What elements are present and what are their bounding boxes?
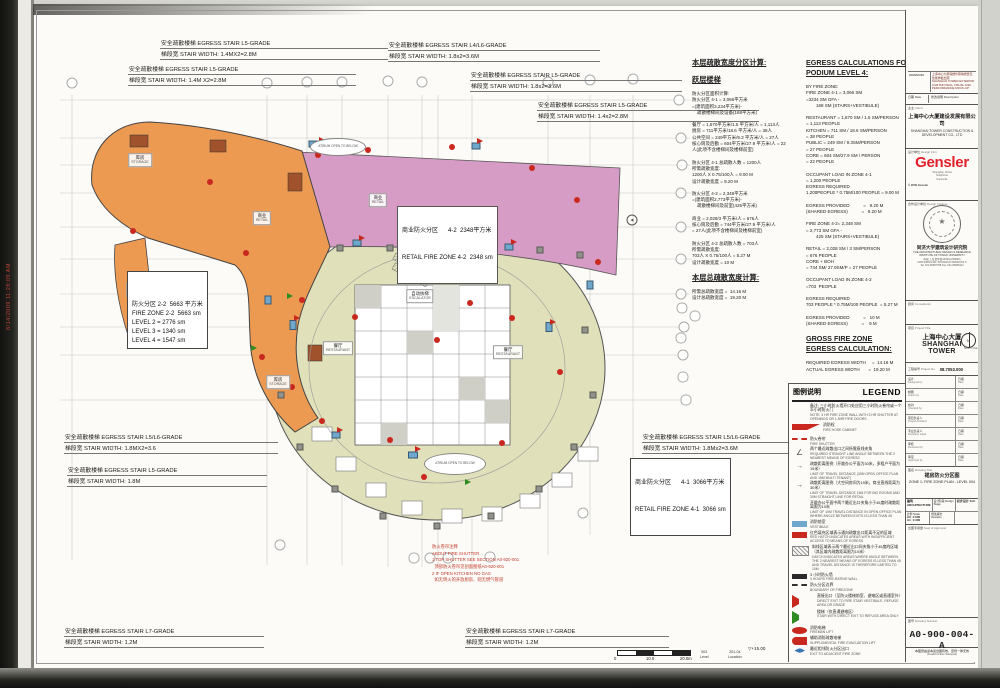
architect-label: 设计单位 Design Firm: [908, 150, 937, 154]
grid-bubble: [676, 222, 687, 233]
legend-item-text: 两个最近疏散出口之间所需直线夹角 REQUIRED STRAIGHT LINE …: [810, 447, 902, 460]
fire-hose-cabinet-icon: [352, 314, 358, 320]
fire-hose-cabinet-icon: [434, 337, 440, 343]
stair-annotation-line2: 梯段宽 STAIR WIDTH: 1.8MX2=3.6: [64, 443, 278, 454]
grid-bubble: [417, 77, 428, 88]
legend-symbol-icon: [792, 502, 807, 507]
revision-section: 2009/06/30 上海中心大厦塔楼外幕墙视觉及性能样板出图 SHANGHAI…: [906, 10, 978, 94]
room-label: 餐厅RESTAURANT: [323, 341, 353, 355]
consultants-section: 顾问 Consultants: [906, 301, 978, 325]
legend-item-cn: 疏散距离图例（大空间房间为15米，商业直线距离为30米）: [810, 481, 902, 490]
scan-binding-edge: [0, 0, 18, 688]
copyright-line: © 2009 Gensler: [908, 183, 976, 187]
page-right-edge-line: [981, 0, 982, 688]
legend-symbol-icon: [792, 482, 807, 489]
fire-zone-2-2-line: 防火分区 2-2 5663 平方米: [132, 301, 203, 310]
grid-bubble: [677, 160, 688, 171]
legend-item-text: 楼梯（仅直通避难区） STAIR WITH DIRECT EXIT TO REF…: [817, 610, 902, 619]
grid-bubble: [676, 133, 687, 144]
vestibule-marker: [265, 296, 272, 305]
legend-items: 备注: 三小时防火墙开口处应用三小时防火卷帘或一个半小时防火门 NOTE: 3 …: [792, 404, 902, 656]
project-number-value: 08.7053.000: [940, 367, 963, 372]
legend-item: 疏散距离图例（开敞办公平面为30米，多租户平面为15米） LIMIT OF TR…: [792, 462, 902, 480]
signature-row: 项目负责人Project Architect 日期Date: [906, 415, 978, 428]
fire-shutter-note-line: ABOUT FIRE SHUTTER: [432, 551, 519, 558]
architect-address: Shanghai, China Telephone Facsimile: [908, 171, 976, 181]
column-marker: [387, 245, 394, 252]
legend-item-text: 防火卷帘 FIRE SHUTTER: [810, 437, 902, 446]
client-section: 业主 Client 上海中心大厦建设发展有限公司 SHANGHAI TOWER …: [906, 105, 978, 149]
legend-item: 消防栓 FIRE HOSE CABINET: [792, 423, 902, 435]
revision-value-cell: [955, 512, 978, 524]
stair-annotation: 安全疏散楼梯 EGRESS STAIR L5-GRADE 梯段宽 STAIR W…: [67, 465, 267, 487]
drawing-number-label: 图号 Drawing Number: [908, 619, 976, 623]
grid-bubble: [679, 322, 690, 333]
fire-shutter-note-line: 如无明火的开放厨房、则无燃气管道: [432, 577, 519, 584]
signature-row: 专业负责人Discipline Head 日期Date: [906, 428, 978, 441]
atrium-open-to-below: ATRIUM OPEN TO BELOW: [424, 453, 486, 475]
grid-bubble: [578, 508, 589, 519]
legend-symbol-icon: [792, 627, 807, 634]
validity-note: 本图纸由蓝本蓝出图有效，否则一律无效 (Invalid Unless Stamp…: [906, 648, 978, 662]
grid-bubble: [676, 188, 687, 199]
exit-triangle-icon: [415, 446, 421, 452]
room-label: 商业RETAIL: [253, 211, 271, 225]
calc-line: [806, 327, 905, 333]
fire-hose-cabinet-icon: [207, 179, 213, 185]
column-marker: [332, 486, 339, 493]
column-marker: [278, 392, 285, 399]
legend-title-cn: 图例说明: [793, 387, 821, 397]
room-label: 自动扶梯ESCALATOR: [406, 289, 433, 303]
legend-item-text: 消防电梯 FIREMAN LIFT: [810, 626, 902, 635]
legend-item-text: 3 小时防火墙 3 HOURS FIRE-RATING WALL: [810, 573, 902, 582]
legend-symbol-icon: [792, 438, 807, 445]
exit-triangle-icon: [465, 479, 471, 485]
legend-symbol-icon: [792, 546, 809, 556]
calc-line: 703 PEOPLE * 0.75M/100 PEOPLE = 5.27 M: [806, 302, 905, 308]
grid-bubble: [67, 78, 78, 89]
legend-symbol-icon: [792, 584, 807, 591]
retail-zone-4-2-cn: 商业防火分区 4-2 2348平方米: [402, 227, 493, 236]
fire-hose-cabinet-icon: [421, 474, 427, 480]
client-label: 业主 Client: [908, 106, 923, 110]
stage-value-cell: 初步设计 S.D.: [956, 499, 978, 511]
legend-item-text: 疏散距离图例（开敞办公平面为30米，多租户平面为15米） LIMIT OF TR…: [810, 462, 902, 480]
stair-annotation: 安全疏散楼梯 EGRESS STAIR L5-GRADE 梯段宽 STAIR W…: [470, 70, 682, 92]
scanned-drawing-sheet: 8/14/2009 11:28:09 AM: [0, 0, 1000, 688]
fire-hose-cabinet-icon: [557, 369, 563, 375]
legend-item-en: LIMIT OF 10M TRAVEL DISTANCE IN OPEN OFF…: [810, 510, 902, 518]
calc-line: GROSS FIRE ZONE: [806, 334, 905, 343]
exit-triangle-icon: [359, 235, 365, 241]
calc-line: REQUIRED EGRESS WIDTH = 14.16 M: [806, 360, 905, 366]
atrium-label: ATRIUM OPEN TO BELOW: [435, 462, 475, 466]
project-number-section: 工程编号 Project No. 08.7053.000: [906, 363, 978, 376]
revision-header-desc: 修改说明 Description: [929, 95, 959, 103]
exit-triangle-icon: [511, 239, 517, 245]
legend-item-en: RED HATCH INDICATES AREAS WITH INSUFFICI…: [810, 535, 902, 543]
legend-item-en: REQUIRED STRAIGHT LINE ANGLE BETWEEN THE…: [810, 452, 902, 460]
legend-item-cn: 斜线区域表示两个最近出口间夹角小于45度的区域（其区域内疏散距离限为10米）: [812, 545, 902, 554]
stair-annotation-line2: 梯段宽 STAIR WIDTH: 1.8Mx2=3.6M: [642, 443, 788, 454]
stair-annotation-line2: 梯段宽 STAIR WIDTH: 1.8M: [67, 476, 267, 487]
grid-bubble: [676, 289, 687, 300]
grid-bubble: [275, 540, 286, 551]
column-marker: [590, 392, 597, 399]
exit-triangle-icon: [287, 293, 293, 299]
fire-hose-cabinet-icon: [499, 440, 505, 446]
signature-row: 校对Checked by 日期Date: [906, 402, 978, 415]
fire-hose-cabinet-icon: [467, 300, 473, 306]
column-marker: [337, 245, 344, 252]
client-name-en: SHANGHAI TOWER CONSTRUCTION & DEVELOPMEN…: [908, 129, 976, 137]
legend-symbol-icon: [792, 463, 807, 470]
stair-annotation-line1: 安全疏散楼梯 EGRESS STAIR L7-GRADE: [64, 626, 264, 637]
stair-annotation: 安全疏散楼梯 EGRESS STAIR L7-GRADE 梯段宽 STAIR W…: [465, 626, 669, 648]
grid-bubble: [676, 254, 687, 265]
legend-item-text: 消防前室 VESTIBULE: [810, 520, 902, 529]
drawing-title-section: 图名 Drawing Title 裙房防火分区图 ZONE 1- FIRE ZO…: [906, 467, 978, 499]
legend-item: 辅助消防疏散电梯 SUPPLEMENTAL FIRE EVACUATION LI…: [792, 636, 902, 645]
legend-item-cn: 直接出口（至防火楼梯前室、避难区或直通室外）: [817, 594, 902, 599]
retail-zone-4-1-cn: 商业防火分区 4-1 3066平方米: [635, 479, 726, 488]
column-marker: [488, 513, 495, 520]
calc-line: 设计总疏散宽度 = 19.20 M: [692, 295, 804, 301]
legend-item-text: 备注: 三小时防火墙开口处应用三小时防火卷帘或一个半小时防火门 NOTE: 3 …: [810, 404, 902, 422]
legend-symbol-icon: [792, 521, 807, 527]
fire-hose-cabinet-icon: [319, 418, 325, 424]
legend-item: 防火分区边界 BOUNDARY OF FIREZONE: [792, 583, 902, 592]
project-number-label: 工程编号 Project No.: [908, 367, 936, 371]
egress-calc-english: EGRESS CALCULATIONS FORPODIUM LEVEL 4:BY…: [806, 57, 905, 373]
stair-annotation: 安全疏散楼梯 EGRESS STAIR L5/L6-GRADE 梯段宽 STAI…: [642, 432, 788, 454]
legend-item-en: NOTE: 3 HR FIRE ZONE WALL WITH 3 HR SHUT…: [810, 413, 902, 421]
column-marker: [582, 327, 589, 334]
seal-approval-section: 出图专用章 Seal of Approval: [906, 525, 978, 618]
room-label: 商业RETAIL: [369, 193, 387, 207]
grid-bubble: [676, 333, 687, 344]
legend-item-en: BOUNDARY OF FIREZONE: [810, 588, 902, 592]
revision-header-row: 日期 Date 修改说明 Description: [906, 94, 978, 105]
legend-item: 疏散距离图例（大空间房间为15米，商业直线距离为30米） LIMIT OF TR…: [792, 481, 902, 499]
legend-symbol-icon: [792, 532, 807, 538]
legend-item-text: 红色填充区域表示通向疏散出口距离不足的区域 RED HATCH INDICATE…: [810, 531, 902, 544]
exit-triangle-icon: [550, 319, 556, 325]
legend-item-text: 斜线区域表示两个最近出口间夹角小于45度的区域（其区域内疏散距离限为10米） H…: [812, 545, 902, 571]
retail-zone-4-1-label: 商业防火分区 4-1 3066平方米 RETAIL FIRE ZONE 4-1 …: [630, 458, 731, 536]
validity-note-en: (Invalid Unless Stamped): [908, 653, 976, 656]
fire-shutter-note: 防火卷帘注释ABOUT FIRE SHUTTER1 TOP SHUTTER SE…: [432, 524, 519, 584]
drawing-title-label: 图名 Drawing Title: [908, 468, 932, 472]
legend-item-cn: 开敞办公平面中两个最近出口夹角小于45度时疏散距离限为10米: [810, 501, 902, 510]
elevation-marker: ▽+15.00: [748, 646, 765, 652]
legend-item-en: STAIR WITH DIRECT EXIT TO REFUGE AREA ON…: [817, 614, 902, 618]
calc-line: [692, 266, 804, 272]
stair-annotation-line2: 梯段宽 STAIR WIDTH: 1.4M X2=2.8M: [128, 75, 356, 86]
north-arrow-label: North to Plan: [964, 347, 978, 350]
stage-label-cell: 设计阶段 Design Stage: [933, 499, 956, 511]
title-block: 2009/06/30 上海中心大厦塔楼外幕墙视觉及性能样板出图 SHANGHAI…: [906, 10, 978, 662]
revision-date: 2009/06/30: [908, 72, 931, 92]
fire-zone-2-2-label: 防火分区 2-2 5663 平方米FIRE ZONE 2-2 5663 smLE…: [127, 271, 208, 349]
revision-row: 2009/06/30 上海中心大厦塔楼外幕墙视觉及性能样板出图 SHANGHAI…: [908, 71, 976, 92]
fire-zone-2-2-line: FIRE ZONE 2-2 5663 sm: [132, 310, 203, 319]
legend-item-cn: 疏散距离图例（开敞办公平面为30米，多租户平面为15米）: [810, 462, 902, 471]
calc-line: EGRESS CALCULATIONS FOR: [806, 58, 905, 67]
stair-annotation-line1: 安全疏散楼梯 EGRESS STAIR L5-GRADE: [470, 70, 682, 81]
atrium-label: ATRIUM OPEN TO BELOW: [318, 145, 358, 149]
legend-header: 图例说明 LEGEND: [792, 386, 902, 402]
revision-header-date: 日期 Date: [908, 95, 929, 103]
plot-timestamp: 8/14/2009 11:28:09 AM: [6, 263, 12, 330]
stair-annotation-line1: 安全疏散楼梯 EGRESS STAIR L5-GRADE: [67, 465, 267, 476]
calc-line: ACTUAL EGRESS WIDTH = 19.20 M: [806, 367, 905, 373]
reference-marker-icon: ◄: [627, 215, 638, 226]
legend-item-text: 直接出口（至防火楼梯前室、避难区或直通室外） DIRECT EXIT TO FI…: [817, 594, 902, 607]
legend-item-en: FIREMAN LIFT: [810, 630, 902, 634]
meta-table: 建筑 ARCHITECTURE 设计阶段 Design Stage 初步设计 S…: [906, 499, 978, 525]
institute-name-en: THE ARCHITECTURAL DESIGN & RESEARCH INST…: [908, 251, 976, 258]
stair-annotation-line1: 安全疏散楼梯 EGRESS STAIR L5/L6-GRADE: [642, 432, 788, 443]
egress-calc-chinese: 本层疏散宽度分区计算:跃层楼梯防火分区面积计算:防火分区 4-1 = 3,066…: [692, 57, 804, 301]
column-marker: [537, 247, 544, 254]
drawing-number-section: 图号 Drawing Number A0-900-004-A: [906, 618, 978, 648]
legend-item-en: VESTIBULE: [810, 525, 902, 529]
legend-item: 消防前室 VESTIBULE: [792, 520, 902, 529]
stair-annotation-line2: 梯段宽 STAIR WIDTH: 1.2M: [465, 637, 669, 648]
legend-item-text: 消防栓 FIRE HOSE CABINET: [823, 423, 902, 432]
stair-annotation-line2: 梯段宽 STAIR WIDTH: 1.4MX2=2.8M: [160, 49, 388, 60]
legend-item-text: 开敞办公平面中两个最近出口夹角小于45度时疏散距离限为10米 LIMIT OF …: [810, 501, 902, 519]
legend-item: 两个最近疏散出口之间所需直线夹角 REQUIRED STRAIGHT LINE …: [792, 447, 902, 460]
grid-bubble: [681, 395, 692, 406]
atrium-open-to-below: ATRIUM OPEN TO BELOW: [310, 138, 366, 156]
column-marker: [380, 513, 387, 520]
fire-hose-cabinet-icon: [529, 165, 535, 171]
legend-item-text: 最近相邻防火分区出口 EXIT TO ADJACENT FIRE ZONE: [810, 647, 902, 656]
grid-bubble: [678, 372, 689, 383]
fire-hose-cabinet-icon: [130, 228, 136, 234]
legend-item-en: 3 HOURS FIRE-RATING WALL: [810, 577, 902, 581]
stair-annotation: 安全疏散楼梯 EGRESS STAIR L4/L6-GRADE 梯段宽 STAI…: [388, 40, 600, 62]
vestibule-marker: [408, 452, 418, 459]
legend-item: 楼梯（仅直通避难区） STAIR WITH DIRECT EXIT TO REF…: [792, 610, 902, 624]
consultants-label: 顾问 Consultants: [908, 302, 976, 306]
project-label: 项目 Project Title: [908, 326, 931, 330]
legend-item: 备注: 三小时防火墙开口处应用三小时防火卷帘或一个半小时防火门 NOTE: 3 …: [792, 404, 902, 422]
legend-item: 3 小时防火墙 3 HOURS FIRE-RATING WALL: [792, 573, 902, 582]
signature-row: 制图Drawn by 日期Date: [906, 389, 978, 402]
drawing-title-en: ZONE 1- FIRE ZONE PLAN - LEVEL 004: [908, 480, 976, 484]
legend-panel: 图例说明 LEGEND 备注: 三小时防火墙开口处应用三小时防火卷帘或一个半小时…: [788, 383, 905, 662]
fire-hose-cabinet-icon: [449, 144, 455, 150]
fire-hose-cabinet-icon: [574, 197, 580, 203]
legend-item-text: 辅助消防疏散电梯 SUPPLEMENTAL FIRE EVACUATION LI…: [810, 636, 902, 645]
project-section: 项目 Project Title 上海中心大厦 SHANGHAI TOWER N…: [906, 325, 978, 363]
seal-approval-label: 出图专用章 Seal of Approval: [908, 526, 976, 530]
legend-symbol-icon: [792, 574, 807, 579]
legend-item-en: FIRE SHUTTER: [810, 442, 902, 446]
vestibule-marker: [587, 281, 594, 290]
legend-item-en: HATCH INDICATES AREAS WHERE ANGLE BETWEE…: [812, 555, 902, 571]
column-marker: [577, 252, 584, 259]
exit-triangle-icon: [294, 315, 300, 321]
grid-bubble: [383, 76, 394, 87]
fire-shutter-note-line: 顶部防火卷帘见剖面图纸A0-920-001: [432, 564, 519, 571]
legend-item-en: FIRE HOSE CABINET: [823, 428, 902, 432]
legend-symbol-icon: [792, 448, 807, 457]
stair-annotation-line2: 梯段宽 STAIR WIDTH: 1.8x2=3.6M: [470, 81, 682, 92]
legend-item-cn: 备注: 三小时防火墙开口处应用三小时防火卷帘或一个半小时防火门: [810, 404, 902, 413]
legend-item-en: DIRECT EXIT TO FIRE STAIR VESTIBULE, REF…: [817, 599, 902, 607]
legend-item: 最近相邻防火分区出口 EXIT TO ADJACENT FIRE ZONE: [792, 647, 902, 656]
stair-annotation: 安全疏散楼梯 EGRESS STAIR L5-GRADE 梯段宽 STAIR W…: [160, 38, 388, 60]
grid-bubble: [365, 62, 376, 73]
legend-item-en: LIMIT OF TRAVEL DISTANCE (30M OPEN OFFIC…: [810, 472, 902, 480]
signature-row: 审核Reviewed by 日期Date: [906, 441, 978, 454]
legend-item: 直接出口（至防火楼梯前室、避难区或直通室外） DIRECT EXIT TO FI…: [792, 594, 902, 608]
calc-line: 跃层楼梯: [692, 75, 804, 84]
discipline-cell: 建筑 ARCHITECTURE: [906, 499, 933, 511]
stair-annotation: 安全疏散楼梯 EGRESS STAIR L5-GRADE 梯段宽 STAIR W…: [128, 64, 356, 86]
stair-annotation-line1: 安全疏散楼梯 EGRESS STAIR L5-GRADE: [128, 64, 356, 75]
grid-bubble: [690, 311, 701, 322]
calc-line: 1,200PEOPLE * 0.75M/100 PEOPLE = 9.00 M: [806, 190, 905, 196]
fire-shutter-note-line: 防火卷帘注释: [432, 544, 519, 551]
client-name-cn: 上海中心大厦建设发展有限公司: [908, 113, 976, 127]
stair-annotation: 安全疏散楼梯 EGRESS STAIR L5/L6-GRADE 梯段宽 STAI…: [64, 432, 278, 454]
fire-zone-2-2-line: LEVEL 3 = 1340 sm: [132, 328, 203, 337]
fire-hose-cabinet-icon: [243, 250, 249, 256]
stair-annotation-line1: 安全疏散楼梯 EGRESS STAIR L7-GRADE: [465, 626, 669, 637]
scale-tick-20: 20.0m: [680, 656, 692, 661]
legend-item: 防火卷帘 FIRE SHUTTER: [792, 437, 902, 446]
stair-annotation-line1: 安全疏散楼梯 EGRESS STAIR L4/L6-GRADE: [388, 40, 600, 51]
scan-bottom-shadow: [0, 668, 1000, 688]
calc-line: PODIUM LEVEL 4:: [806, 68, 905, 77]
legend-item: 红色填充区域表示通向疏散出口距离不足的区域 RED HATCH INDICATE…: [792, 531, 902, 544]
location-tag: Z01-04Location: [728, 650, 742, 659]
fire-hose-cabinet-icon: [259, 354, 265, 360]
revision-description: 上海中心大厦塔楼外幕墙视觉及性能样板出图 SHANGHAI TOWER EXTE…: [931, 72, 976, 92]
fire-hose-cabinet-icon: [365, 147, 371, 153]
scale-cell: 比例 Scale A3_1:600 A1_1:300: [906, 512, 930, 524]
legend-item-text: 防火分区边界 BOUNDARY OF FIREZONE: [810, 583, 902, 592]
fire-hose-cabinet-icon: [595, 259, 601, 265]
legend-symbol-icon: [792, 648, 807, 654]
legend-symbol-icon: [792, 405, 807, 410]
exit-triangle-icon: [251, 345, 257, 351]
signature-rows: 设计Designed by 日期Date 制图Drawn by 日期Date 校…: [906, 376, 978, 467]
scale-tick-10: 10.0: [646, 656, 654, 661]
gensler-logo: Gensler: [908, 154, 976, 171]
legend-item-en: EXIT TO ADJACENT FIRE ZONE: [810, 652, 902, 656]
legend-item: 开敞办公平面中两个最近出口夹角小于45度时疏散距离限为10米 LIMIT OF …: [792, 501, 902, 519]
calc-line: [692, 68, 804, 74]
grid-bubble: [402, 63, 413, 74]
fire-hose-cabinet-icon: [299, 297, 305, 303]
stair-annotation-line1: 安全疏散楼梯 EGRESS STAIR L5-GRADE: [160, 38, 388, 49]
revision-label-cell: 修改版次 Revision: [930, 512, 954, 524]
room-label: 餐厅RESTAURANT: [493, 345, 523, 359]
legend-item-en: LIMIT OF TRAVEL DISTANCE 15M FOR BIG ROO…: [810, 491, 902, 499]
legend-item: 斜线区域表示两个最近出口间夹角小于45度的区域（其区域内疏散距离限为10米） H…: [792, 545, 902, 571]
fire-zone-2-2-line: LEVEL 4 = 1547 sm: [132, 337, 203, 346]
legend-symbol-icon: [792, 595, 814, 608]
calc-line: 本层疏散宽度分区计算:: [692, 58, 804, 67]
stair-annotation-line1: 安全疏散楼梯 EGRESS STAIR L5/L6-GRADE: [64, 432, 278, 443]
legend-symbol-icon: [792, 611, 814, 624]
signature-row: 审定Approved by 日期Date: [906, 454, 978, 467]
drawing-title-cn: 裙房防火分区图: [908, 472, 976, 479]
room-label: 库房STORAGE: [128, 153, 152, 167]
column-marker: [297, 444, 304, 451]
legend-title-en: LEGEND: [863, 387, 901, 397]
column-marker: [536, 486, 543, 493]
column-marker: [571, 444, 578, 451]
scale-tick-0: 0: [614, 656, 616, 661]
institute-address: 中国 上海 四平路1239号(200092) 1239 SIPING RD. S…: [908, 258, 976, 268]
architect-section: 设计单位 Design Firm Gensler Shanghai, China…: [906, 149, 978, 201]
stair-annotation-line2: 梯段宽 STAIR WIDTH: 1.2M: [64, 637, 264, 648]
room-label: 库房STORAGE: [266, 375, 290, 389]
retail-zone-4-2-en: RETAIL FIRE ZONE 4-2 2348 sm: [402, 254, 493, 263]
legend-item-text: 疏散距离图例（大空间房间为15米，商业直线距离为30米） LIMIT OF TR…: [810, 481, 902, 499]
fire-hose-cabinet-icon: [289, 384, 295, 390]
vestibule-marker: [290, 320, 297, 330]
level-tag: 004Level: [700, 650, 709, 659]
tongji-seal: [923, 205, 961, 243]
legend-item: 消防电梯 FIREMAN LIFT: [792, 626, 902, 635]
signature-row: 设计Designed by 日期Date: [906, 376, 978, 389]
stair-annotation-line2: 梯段宽 STAIR WIDTH: 1.8x2=3.6M: [388, 51, 600, 62]
fire-hose-cabinet-icon: [509, 315, 515, 321]
retail-zone-4-2-label: 商业防火分区 4-2 2348平方米 RETAIL FIRE ZONE 4-2 …: [397, 206, 498, 284]
north-arrow-icon: N: [961, 333, 976, 348]
retail-zone-4-1-en: RETAIL FIRE ZONE 4-1 3066 sm: [635, 506, 726, 515]
fire-shutter-note-line: 1 TOP SHUTTER SEE SECTION A0-920-001: [432, 557, 519, 564]
exit-triangle-icon: [477, 138, 483, 144]
exit-triangle-icon: [337, 427, 343, 433]
legend-symbol-icon: [792, 424, 820, 435]
legend-item-en: SUPPLEMENTAL FIRE EVACUATION LIFT: [810, 641, 902, 645]
calc-line: EGRESS CALCULATION:: [806, 344, 905, 353]
legend-symbol-icon: [792, 637, 807, 645]
stair-annotation: 安全疏散楼梯 EGRESS STAIR L7-GRADE 梯段宽 STAIR W…: [64, 626, 264, 648]
grid-bubble: [409, 553, 420, 564]
fire-zone-2-2-line: LEVEL 2 = 2776 sm: [132, 319, 203, 328]
calc-line: 本层总疏散宽度计算:: [692, 273, 804, 282]
grid-bubble: [677, 303, 688, 314]
fire-hose-cabinet-icon: [387, 437, 393, 443]
design-institute-section: 合作设计单位 Design Institute 同济大学建筑设计研究院 THE …: [906, 201, 978, 301]
grid-bubble: [433, 63, 444, 74]
grid-bubble: [678, 350, 689, 361]
